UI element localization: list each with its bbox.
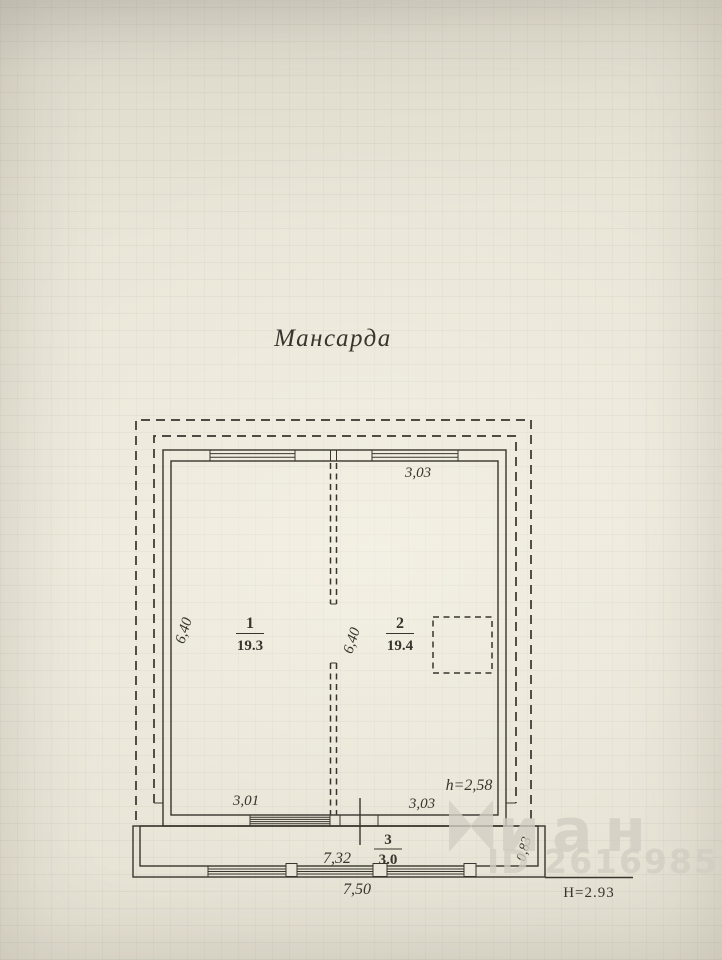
dim-top-width: 3,03: [404, 465, 431, 481]
bottom-wall-openings: [250, 798, 378, 845]
dim-balcony-inner-width: 7,32: [323, 850, 351, 867]
dim-left-depth: 6,40: [173, 615, 196, 645]
room-3-label: 3 3.0: [374, 832, 402, 868]
dim-center-depth: 6,40: [341, 625, 364, 655]
floor-plan-photo: Мансарда: [0, 0, 722, 960]
room-1-area: 19.3: [237, 638, 263, 654]
top-wall-windows: [210, 450, 458, 461]
floor-plan-drawing: Мансарда: [0, 0, 722, 960]
roof-outline-inner-dashed: [154, 436, 516, 803]
dim-overall-width: 7,50: [343, 881, 371, 898]
room-2-area: 19.4: [387, 638, 414, 654]
watermark: иан ID 2616985: [449, 796, 719, 881]
room-1-label: 1 19.3: [236, 615, 264, 654]
room-2-number: 2: [396, 615, 404, 632]
room-3-area: 3.0: [379, 852, 398, 868]
plan-title: Мансарда: [273, 325, 392, 352]
dim-inner-height: h=2,58: [446, 777, 493, 794]
dim-room1-width: 3,01: [232, 793, 259, 809]
exterior-walls: [163, 450, 506, 826]
partition-dashed: [331, 450, 337, 815]
chimney-dashed-square: [433, 617, 492, 673]
watermark-id-text: ID 2616985: [487, 842, 719, 881]
room-3-number: 3: [384, 832, 392, 848]
dim-overall-height: H=2.93: [563, 885, 615, 901]
room-1-number: 1: [246, 615, 254, 632]
dim-room2-width: 3,03: [408, 796, 435, 812]
roof-outline-outer-dashed: [136, 420, 531, 820]
cian-logo-watermark-icon: [449, 800, 472, 852]
room-2-label: 2 19.4: [386, 615, 414, 654]
